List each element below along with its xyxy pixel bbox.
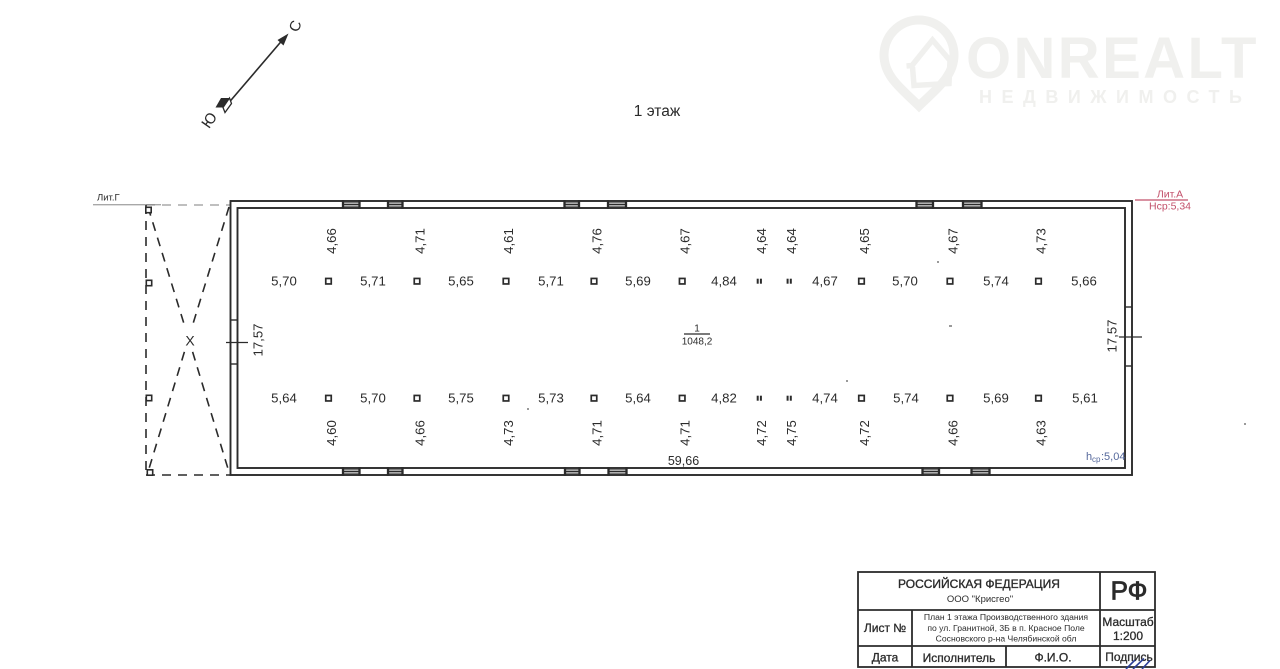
svg-text:5,70: 5,70 — [892, 274, 918, 289]
svg-text:1048,2: 1048,2 — [682, 337, 713, 348]
svg-text:РФ: РФ — [1111, 576, 1148, 606]
svg-text:5,64: 5,64 — [271, 391, 297, 406]
svg-text:4,71: 4,71 — [590, 420, 605, 446]
svg-text:Ф.И.О.: Ф.И.О. — [1034, 651, 1071, 665]
svg-text:4,82: 4,82 — [711, 391, 737, 406]
svg-text:1:200: 1:200 — [1113, 629, 1143, 643]
svg-text:5,66: 5,66 — [1071, 274, 1097, 289]
svg-text:4,72: 4,72 — [857, 420, 872, 446]
svg-text:5,74: 5,74 — [983, 274, 1009, 289]
svg-text:4,73: 4,73 — [1034, 228, 1049, 254]
svg-text:X: X — [185, 333, 195, 349]
svg-text:59,66: 59,66 — [668, 454, 699, 468]
svg-text:17,57: 17,57 — [1105, 319, 1120, 352]
svg-text:5,64: 5,64 — [625, 391, 651, 406]
svg-text:5,69: 5,69 — [983, 391, 1009, 406]
svg-text:4,61: 4,61 — [501, 228, 516, 254]
svg-text:Нср:5,34: Нср:5,34 — [1149, 201, 1191, 213]
svg-text:План 1 этажа Производственного: План 1 этажа Производственного здания — [924, 612, 1089, 622]
svg-text:5,70: 5,70 — [360, 391, 386, 406]
svg-text:4,67: 4,67 — [812, 274, 838, 289]
svg-text:4,66: 4,66 — [324, 228, 339, 254]
svg-text:1 этаж: 1 этаж — [634, 103, 681, 120]
svg-text:4,75: 4,75 — [784, 420, 799, 446]
svg-text:4,60: 4,60 — [324, 420, 339, 446]
svg-text:4,66: 4,66 — [946, 420, 961, 446]
svg-text:5,69: 5,69 — [625, 274, 651, 289]
svg-text:4,72: 4,72 — [754, 420, 769, 446]
svg-text:ONREALT: ONREALT — [966, 26, 1259, 91]
svg-text:5,65: 5,65 — [448, 274, 474, 289]
svg-text:4,84: 4,84 — [711, 274, 737, 289]
svg-text:Масштаб: Масштаб — [1102, 615, 1153, 629]
svg-text:5,71: 5,71 — [538, 274, 564, 289]
svg-text:4,67: 4,67 — [946, 228, 961, 254]
svg-text:4,66: 4,66 — [413, 420, 428, 446]
svg-text:5,61: 5,61 — [1072, 391, 1098, 406]
svg-text:4,73: 4,73 — [501, 420, 516, 446]
svg-text:Подпись: Подпись — [1105, 650, 1153, 664]
svg-text:Лит.А: Лит.А — [1157, 189, 1183, 201]
svg-text:Дата: Дата — [872, 651, 899, 665]
svg-text:4,76: 4,76 — [590, 228, 605, 254]
svg-text::5,04: :5,04 — [1101, 451, 1125, 463]
svg-text:4,65: 4,65 — [857, 228, 872, 254]
svg-text:4,64: 4,64 — [784, 228, 799, 254]
svg-text:4,71: 4,71 — [413, 228, 428, 254]
svg-text:5,70: 5,70 — [271, 274, 297, 289]
svg-text:4,63: 4,63 — [1034, 420, 1049, 446]
svg-text:1: 1 — [694, 324, 700, 335]
svg-text:5,73: 5,73 — [538, 391, 564, 406]
svg-text:5,74: 5,74 — [893, 391, 919, 406]
svg-text:5,71: 5,71 — [360, 274, 386, 289]
svg-text:ООО "Крисгео": ООО "Крисгео" — [947, 594, 1013, 605]
svg-text:4,67: 4,67 — [678, 228, 693, 254]
svg-text:4,64: 4,64 — [754, 228, 769, 254]
svg-text:НЕДВИЖИМОСТЬ: НЕДВИЖИМОСТЬ — [979, 87, 1251, 107]
svg-text:5,75: 5,75 — [448, 391, 474, 406]
svg-text:ср: ср — [1092, 455, 1101, 464]
svg-text:4,71: 4,71 — [678, 420, 693, 446]
svg-text:Исполнитель: Исполнитель — [923, 651, 996, 665]
svg-text:4,74: 4,74 — [812, 391, 838, 406]
svg-text:Лист №: Лист № — [864, 621, 906, 635]
svg-text:РОССИЙСКАЯ ФЕДЕРАЦИЯ: РОССИЙСКАЯ ФЕДЕРАЦИЯ — [898, 576, 1060, 591]
svg-text:17,57: 17,57 — [251, 323, 266, 356]
svg-text:Лит.Г: Лит.Г — [97, 193, 120, 204]
svg-text:по ул. Гранитной, 3Б в п. Крас: по ул. Гранитной, 3Б в п. Красное Поле — [927, 623, 1085, 633]
svg-text:Сосновского р-на Челябинской о: Сосновского р-на Челябинской обл — [936, 634, 1077, 644]
